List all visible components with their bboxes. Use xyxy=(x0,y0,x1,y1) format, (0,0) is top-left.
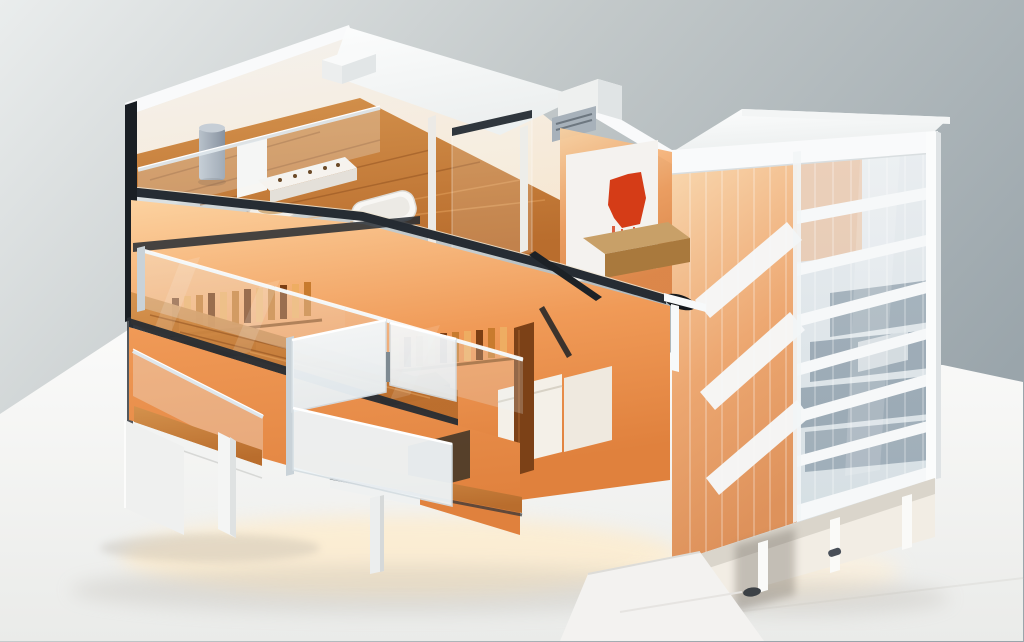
support-pillar xyxy=(370,495,384,574)
panel-connector xyxy=(386,352,390,382)
support-pillar xyxy=(218,432,236,538)
render-canvas xyxy=(0,0,1024,642)
tower-corner-shade xyxy=(936,131,941,479)
building-cutaway-render xyxy=(0,0,1024,642)
balustrade-end-post xyxy=(137,246,145,312)
tower-seam-column xyxy=(793,151,801,523)
tower-wing xyxy=(672,109,950,612)
